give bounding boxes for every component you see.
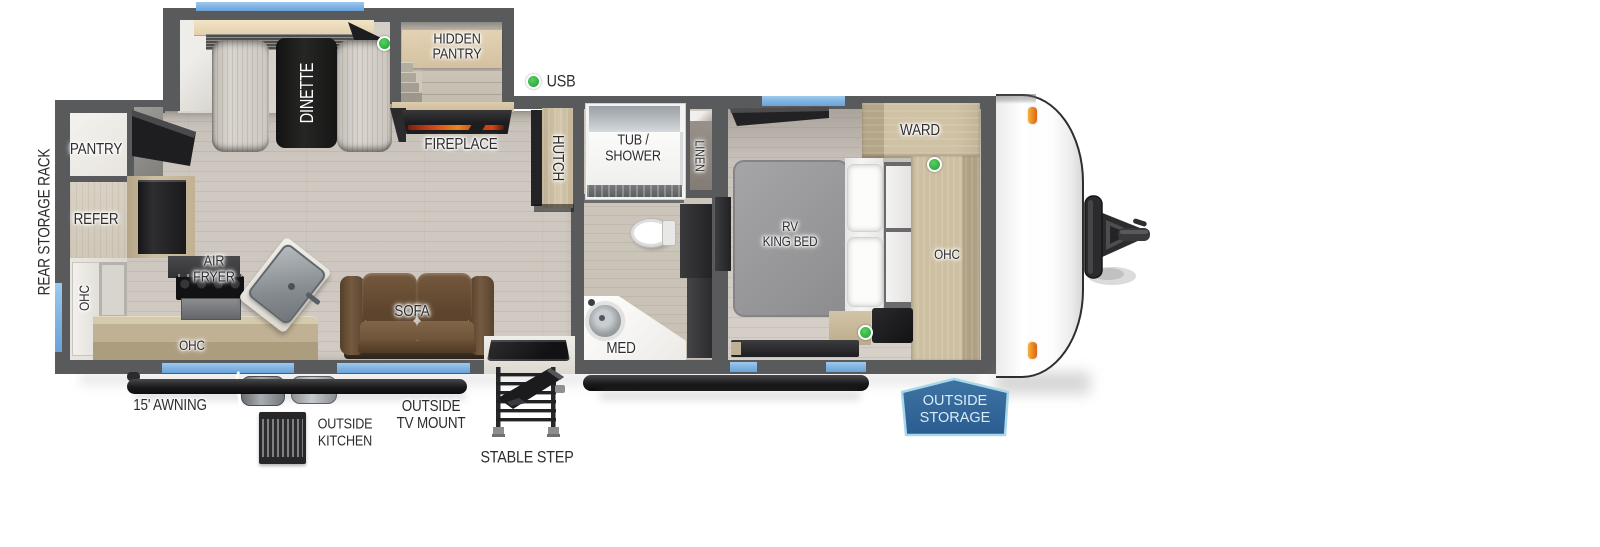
svg-text:OUTSIDE: OUTSIDE [923, 393, 988, 409]
svg-text:STORAGE: STORAGE [920, 410, 991, 426]
